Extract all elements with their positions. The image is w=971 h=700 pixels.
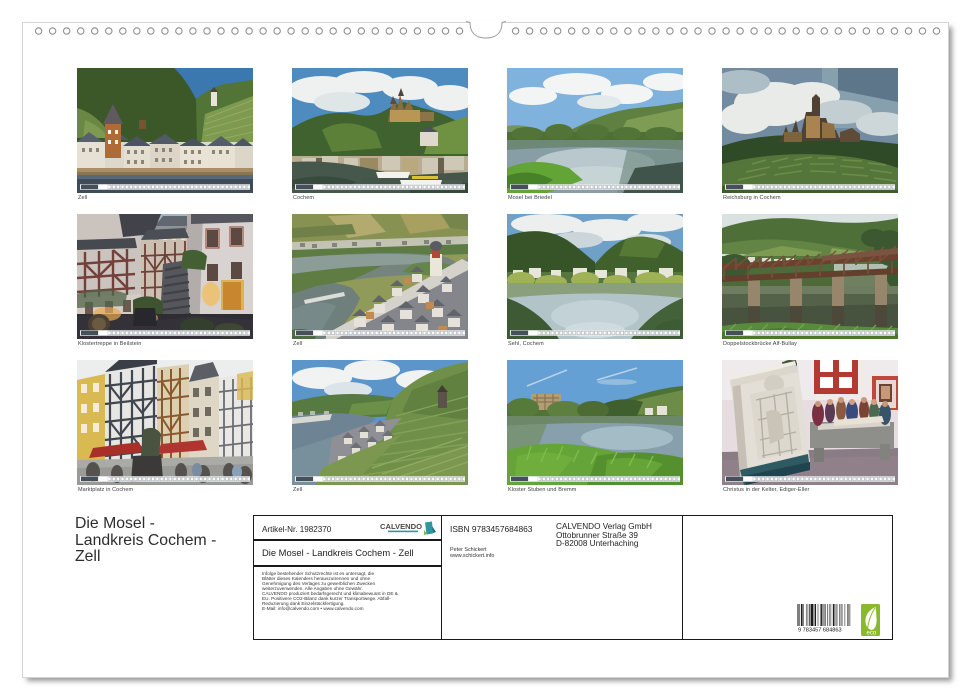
svg-text:CALVENDO: CALVENDO [380, 522, 422, 531]
svg-text:9 783457 684863: 9 783457 684863 [798, 627, 842, 632]
svg-text:eco: eco [867, 631, 877, 637]
